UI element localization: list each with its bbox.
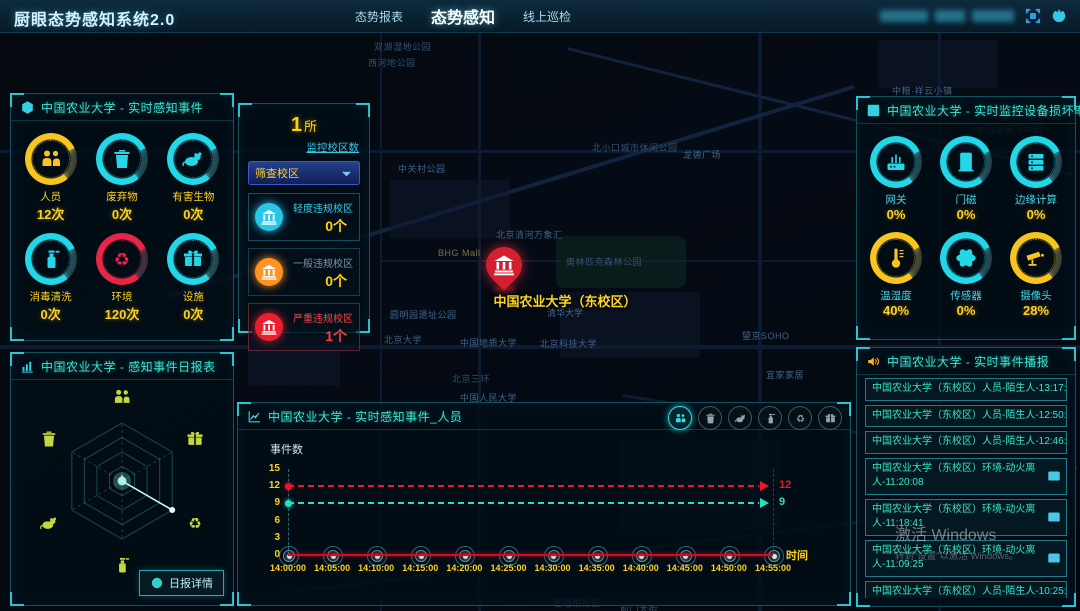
gauge: 有害生物 0次 xyxy=(158,133,229,223)
gauge-value: 0% xyxy=(931,207,1001,222)
nav-tab[interactable]: 线上巡检 xyxy=(523,8,571,25)
reference-dot xyxy=(285,500,292,507)
gauge-icon xyxy=(954,246,978,270)
picture-icon[interactable] xyxy=(1047,469,1061,483)
broadcast-item-text: 中国农业大学（东校区）环境-动火离人-11:20:08 xyxy=(872,463,1035,489)
gauge-value: 0% xyxy=(861,207,931,222)
power-icon[interactable] xyxy=(1050,7,1068,25)
map-label: 北京三环 xyxy=(452,372,490,385)
gauge-label: 摄像头 xyxy=(1001,288,1071,303)
gauge: 消毒清洗 0次 xyxy=(15,233,86,323)
y-tick-label: 3 xyxy=(256,532,280,543)
gauge-label: 边缘计算 xyxy=(1001,192,1071,207)
gauge-ring: ♻ xyxy=(96,233,148,285)
gauge-value: 0% xyxy=(1001,207,1071,222)
campus-rows: 轻度违规校区 0个 一般违规校区 0个 严重违规校区 1个 xyxy=(239,193,369,351)
map-label: 望京SOHO xyxy=(742,329,790,342)
gauge-ring xyxy=(167,133,219,185)
box-icon xyxy=(185,429,205,449)
campus-row-label: 严重违规校区 xyxy=(293,310,353,325)
gauge-ring xyxy=(1010,136,1062,188)
data-point-marker xyxy=(323,546,343,566)
y-tick-label: 6 xyxy=(256,515,280,526)
campus-count: 1所 xyxy=(239,114,369,137)
gauge-ring xyxy=(1010,232,1062,284)
map-label: 北小口城市休闲公园 xyxy=(592,141,678,154)
axis-guide-line xyxy=(773,469,774,555)
panel-title: 中国农业大学 - 实时监控设备损坏率 xyxy=(887,102,1080,119)
gauge: 传感器 0% xyxy=(931,232,1001,318)
gauge-grid: 网关 0% 门磁 0% 边缘计算 0% xyxy=(857,124,1075,318)
data-point-marker xyxy=(632,546,652,566)
app-root: 双湖湿地公园西河地公园中关村公园北小口城市休闲公园龙德广场北京清河万象汇BHG … xyxy=(0,0,1080,611)
reference-arrow xyxy=(760,498,769,508)
gauge: ♻ 环境 120次 xyxy=(86,233,157,323)
gauge-icon xyxy=(1024,150,1048,174)
gauge-ring xyxy=(96,133,148,185)
reference-arrow xyxy=(760,481,769,491)
data-point-marker xyxy=(279,546,299,566)
data-point-marker xyxy=(544,546,564,566)
picture-icon[interactable] xyxy=(1047,510,1061,524)
campus-row[interactable]: 严重违规校区 1个 xyxy=(248,303,360,351)
panel-head: 中国农业大学 - 实时感知事件 xyxy=(11,94,233,121)
axis-guide-line xyxy=(288,469,289,555)
picture-icon[interactable] xyxy=(1047,551,1061,565)
gauge-ring xyxy=(25,133,77,185)
city-block xyxy=(390,180,510,238)
map-label: 中关村公园 xyxy=(398,162,446,175)
campus-row-label: 一般违规校区 xyxy=(293,255,353,270)
gauge: 温湿度 40% xyxy=(861,232,931,318)
map-label: BHG Mall xyxy=(438,248,481,258)
event-series-line xyxy=(288,554,773,556)
panel-head: 中国农业大学 - 感知事件日报表 xyxy=(11,353,233,380)
top-header: 厨眼态势感知系统2.0 态势报表态势感知线上巡检 xyxy=(0,0,1080,33)
data-point-marker xyxy=(764,546,784,566)
data-point-marker xyxy=(676,546,696,566)
reference-value-label: 9 xyxy=(779,496,785,508)
gauge: 摄像头 28% xyxy=(1001,232,1071,318)
panel-daily-report: 中国农业大学 - 感知事件日报表 ♻ 日报详情 xyxy=(10,352,234,606)
map-pin[interactable] xyxy=(479,240,530,291)
bank-icon xyxy=(255,203,283,231)
gauge: 废弃物 0次 xyxy=(86,133,157,223)
cube-icon xyxy=(20,100,35,115)
gauge-label: 网关 xyxy=(861,192,931,207)
broadcast-item-text: 中国农业大学（东校区）人员-陌生人-13:17:08 xyxy=(872,383,1067,394)
gauge-icon xyxy=(39,147,63,171)
city-block xyxy=(878,40,998,88)
broadcast-item-text: 中国农业大学（东校区）环境-动火离人-11:18:41 xyxy=(872,504,1035,530)
gauge-grid: 人员 12次 废弃物 0次 有害生物 0次 xyxy=(11,121,233,323)
rat-icon xyxy=(39,513,59,533)
campus-row[interactable]: 轻度违规校区 0个 xyxy=(248,193,360,241)
gauge: 人员 12次 xyxy=(15,133,86,223)
map-label: 龙德广场 xyxy=(683,148,721,161)
gauge-ring xyxy=(940,136,992,188)
trash-icon xyxy=(39,429,59,449)
reference-dot xyxy=(285,483,292,490)
panel-head: 中国农业大学 - 实时监控设备损坏率 xyxy=(857,97,1075,124)
bank-icon xyxy=(255,313,283,341)
map-label: 中国地质大学 xyxy=(460,336,517,349)
panel-title: 中国农业大学 - 感知事件日报表 xyxy=(41,358,216,375)
svg-text:♻: ♻ xyxy=(114,250,130,270)
gauge-ring xyxy=(870,232,922,284)
campus-row-value: 0个 xyxy=(325,271,347,291)
gauge-icon xyxy=(1024,246,1048,270)
building-icon xyxy=(492,253,516,277)
daily-report-button-label: 日报详情 xyxy=(169,575,213,591)
broadcast-item[interactable]: 中国农业大学（东校区）人员-陌生人-12:50:48 xyxy=(865,405,1067,428)
gauge: 门磁 0% xyxy=(931,136,1001,222)
data-point-marker xyxy=(588,546,608,566)
campus-row[interactable]: 一般违规校区 0个 xyxy=(248,248,360,296)
y-tick-label: 9 xyxy=(256,497,280,508)
broadcast-item[interactable]: 中国农业大学（东校区）环境-动火离人-11:20:08 xyxy=(865,458,1067,495)
gauge-value: 0次 xyxy=(15,304,86,323)
panel-title: 中国农业大学 - 实时事件播报 xyxy=(887,353,1049,370)
people-icon xyxy=(112,387,132,407)
radar-svg xyxy=(25,383,219,579)
map-label: 西河地公园 xyxy=(368,56,416,69)
campus-row-label: 轻度违规校区 xyxy=(293,200,353,215)
panel-perception-events: 中国农业大学 - 实时感知事件 人员 12次 废弃物 0次 xyxy=(10,93,234,341)
y-tick-label: 0 xyxy=(256,549,280,560)
gauge-label: 门磁 xyxy=(931,192,1001,207)
broadcast-item-text: 中国农业大学（东校区）人员-陌生人-12:50:48 xyxy=(872,410,1067,421)
svg-text:♻: ♻ xyxy=(188,515,201,532)
redacted-user-info xyxy=(880,10,1014,22)
app-title: 厨眼态势感知系统2.0 xyxy=(14,6,175,30)
broadcast-item[interactable]: 中国农业大学（东校区）人员-陌生人-10:25:50 xyxy=(865,581,1067,599)
main-nav: 态势报表态势感知线上巡检 xyxy=(355,0,571,32)
y-tick-label: 12 xyxy=(256,480,280,491)
map-label: 圆明园遗址公园 xyxy=(390,308,457,321)
gauge-icon xyxy=(181,147,205,171)
gauge-icon xyxy=(181,247,205,271)
globe-icon xyxy=(150,576,164,590)
gauge: 网关 0% xyxy=(861,136,931,222)
map-label: 北京科技大学 xyxy=(540,337,597,350)
panel-title: 中国农业大学 - 实时感知事件 xyxy=(41,99,203,116)
gauge: 设施 0次 xyxy=(158,233,229,323)
gauge-value: 28% xyxy=(1001,303,1071,318)
gauge-icon xyxy=(954,150,978,174)
gauge-label: 设施 xyxy=(158,289,229,304)
x-axis-title: 时间 xyxy=(786,547,808,563)
gauge-icon xyxy=(110,147,134,171)
gauge-value: 0% xyxy=(931,303,1001,318)
panel-head: 中国农业大学 - 实时事件播报 xyxy=(857,348,1075,375)
campus-count-label: 监控校区数 xyxy=(239,140,359,155)
gauge-icon xyxy=(884,246,908,270)
broadcast-list[interactable]: 中国农业大学（东校区）人员-陌生人-13:17:08 中国农业大学（东校区）人员… xyxy=(865,378,1067,598)
trend-plot-area: 事件数 时间 0369121514:00:0014:05:0014:10:001… xyxy=(238,403,850,605)
gauge-ring xyxy=(167,233,219,285)
panel-campus-filter: 1所 监控校区数 筛查校区 轻度违规校区 0个 一般违规校区 0个 严重违规校区… xyxy=(238,103,370,333)
bank-icon xyxy=(255,258,283,286)
map-label: 北京清河万象汇 xyxy=(496,228,563,241)
map-pin-sublabel: 清华大学 xyxy=(470,306,660,319)
data-point-marker xyxy=(720,546,740,566)
dropdown-value: 筛查校区 xyxy=(255,165,299,181)
gauge-ring xyxy=(25,233,77,285)
gauge-label: 温湿度 xyxy=(861,288,931,303)
gauge-label: 废弃物 xyxy=(86,189,157,204)
gauge-ring xyxy=(940,232,992,284)
broadcast-item[interactable]: 中国农业大学（东校区）人员-陌生人-12:46:02 xyxy=(865,431,1067,454)
map-label: 奥林匹克森林公园 xyxy=(566,255,642,268)
gauge-label: 消毒清洗 xyxy=(15,289,86,304)
gauge-value: 12次 xyxy=(15,204,86,223)
campus-filter-dropdown[interactable]: 筛查校区 xyxy=(248,161,360,185)
broadcast-item[interactable]: 中国农业大学（东校区）环境-动火离人-11:09:25 xyxy=(865,540,1067,577)
daily-report-button[interactable]: 日报详情 xyxy=(139,570,224,596)
panel-device-status: 中国农业大学 - 实时监控设备损坏率 网关 0% 门磁 0% xyxy=(856,96,1076,340)
broadcast-item-text: 中国农业大学（东校区）环境-动火离人-11:09:25 xyxy=(872,545,1035,571)
speaker-icon xyxy=(866,354,881,369)
nav-tab[interactable]: 态势感知 xyxy=(431,4,495,28)
gauge-label: 环境 xyxy=(86,289,157,304)
gauge-value: 0次 xyxy=(158,304,229,323)
y-axis-title: 事件数 xyxy=(270,441,303,457)
gauge-label: 有害生物 xyxy=(158,189,229,204)
spray-icon xyxy=(112,555,132,575)
y-tick-label: 15 xyxy=(256,463,280,474)
gauge-value: 0次 xyxy=(86,204,157,223)
reference-value-label: 12 xyxy=(779,479,791,491)
panel-event-trend: 中国农业大学 - 实时感知事件_人员 ♻ 事件数 时间 0369121514 xyxy=(237,402,851,606)
reference-line xyxy=(288,485,759,487)
gauge: 边缘计算 0% xyxy=(1001,136,1071,222)
gauge-icon xyxy=(884,150,908,174)
map-label: 北京大学 xyxy=(384,333,422,346)
chevron-down-icon xyxy=(340,167,353,180)
gauge-value: 40% xyxy=(861,303,931,318)
nav-tab[interactable]: 态势报表 xyxy=(355,8,403,25)
broadcast-item[interactable]: 中国农业大学（东校区）人员-陌生人-13:17:08 xyxy=(865,378,1067,401)
reference-line xyxy=(288,502,759,504)
broadcast-item-text: 中国农业大学（东校区）人员-陌生人-10:25:50 xyxy=(872,586,1067,597)
campus-count-unit: 所 xyxy=(304,119,317,134)
campus-row-value: 1个 xyxy=(325,326,347,346)
radar-chart: ♻ xyxy=(25,383,219,579)
gauge-label: 人员 xyxy=(15,189,86,204)
panel-event-broadcast: 中国农业大学 - 实时事件播报 中国农业大学（东校区）人员-陌生人-13:17:… xyxy=(856,347,1076,607)
gauge-icon xyxy=(39,247,63,271)
campus-row-value: 0个 xyxy=(325,216,347,236)
list-icon xyxy=(866,103,881,118)
gauge-value: 0次 xyxy=(158,204,229,223)
recycle-icon: ♻ xyxy=(185,513,205,533)
gauge-ring xyxy=(870,136,922,188)
broadcast-item-text: 中国农业大学（东校区）人员-陌生人-12:46:02 xyxy=(872,436,1067,447)
campus-count-number: 1 xyxy=(291,114,302,136)
map-label: 双湖湿地公园 xyxy=(374,40,431,53)
bar-chart-icon xyxy=(20,359,35,374)
broadcast-item[interactable]: 中国农业大学（东校区）环境-动火离人-11:18:41 xyxy=(865,499,1067,536)
gauge-icon: ♻ xyxy=(110,247,134,271)
gauge-value: 120次 xyxy=(86,304,157,323)
fullscreen-icon[interactable] xyxy=(1024,7,1042,25)
gauge-label: 传感器 xyxy=(931,288,1001,303)
map-label: 宜家家居 xyxy=(766,368,804,381)
